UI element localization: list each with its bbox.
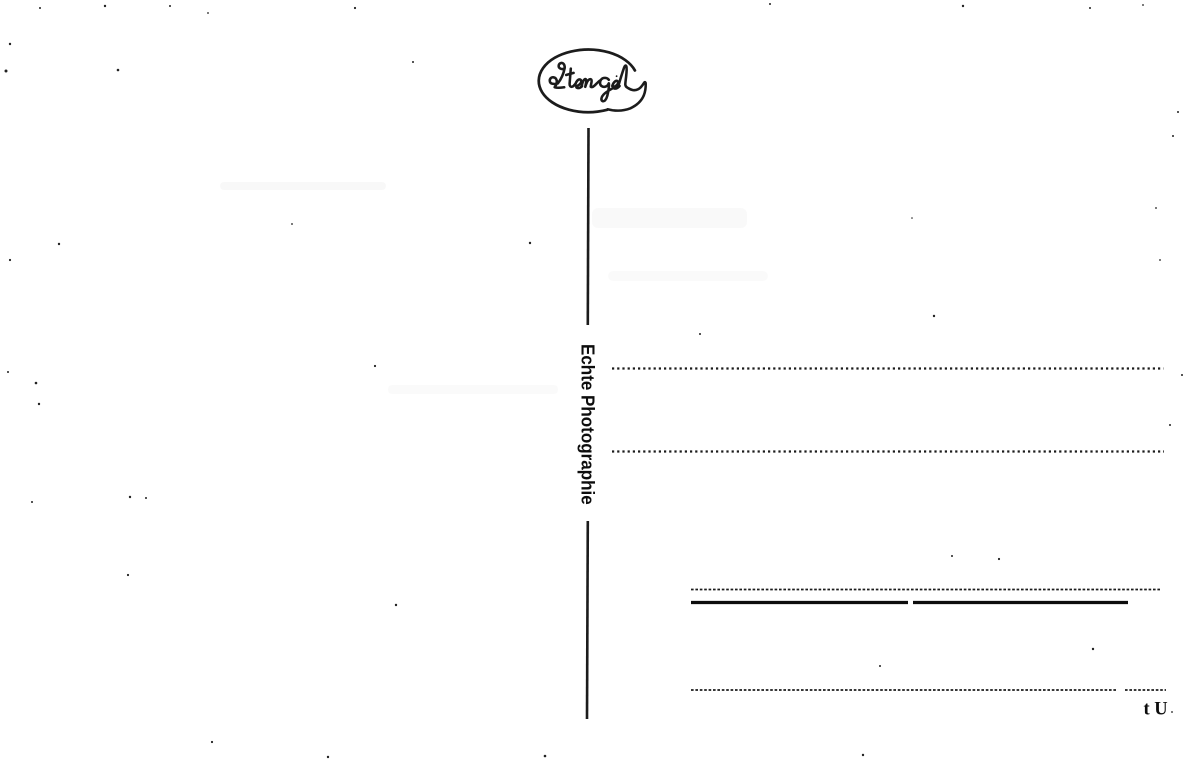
svg-text:Echte Photographie: Echte Photographie	[577, 344, 598, 505]
svg-text:t U: t U	[1144, 700, 1168, 720]
